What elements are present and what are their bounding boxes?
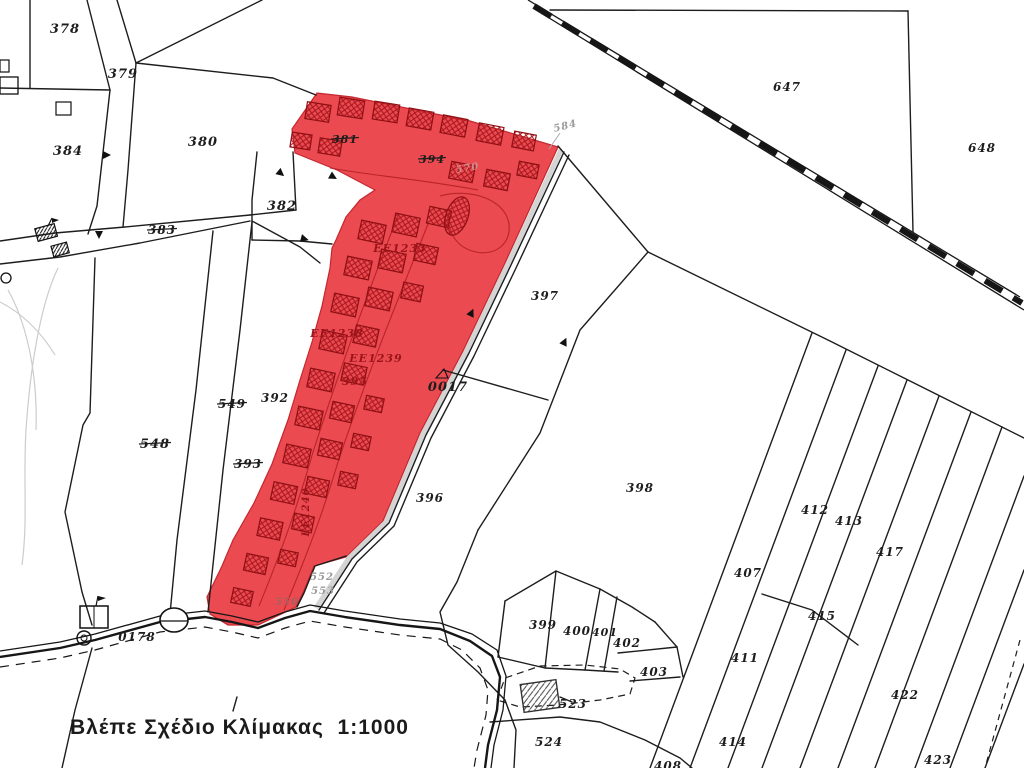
parcel-label-379: 379 xyxy=(108,67,138,82)
boundary-line xyxy=(690,350,846,768)
parcel-label-417: 417 xyxy=(876,545,904,559)
field-path xyxy=(0,302,55,355)
parcel-label-398: 398 xyxy=(626,481,654,495)
parcel-label-0017: 0017 xyxy=(428,380,468,395)
survey-mark-icon xyxy=(275,168,286,179)
parcel-label-408: 408 xyxy=(654,759,682,768)
plot-hatch xyxy=(257,518,283,540)
boundary-line xyxy=(136,63,316,95)
survey-mark-icon xyxy=(559,336,570,347)
parcel-label-402: 402 xyxy=(613,636,641,650)
parcel-label-414: 414 xyxy=(719,735,747,749)
parcel-label-647: 647 xyxy=(773,80,801,94)
parcel-label-523: 523 xyxy=(559,697,587,711)
map-caption: Βλέπε Σχέδιο Κλίμακας 1:1000 xyxy=(70,716,409,740)
road-line xyxy=(0,611,500,768)
boundary-line xyxy=(838,412,971,768)
parcel-label-380: 380 xyxy=(188,135,218,150)
parcel-label-395: 395 xyxy=(342,375,368,388)
boundary-line xyxy=(87,0,110,90)
parcel-label-0178: 0178 xyxy=(118,630,155,644)
parcel-label-584: 584 xyxy=(552,118,578,134)
plot-hatch xyxy=(512,131,537,151)
parcel-label-422: 422 xyxy=(891,688,919,702)
building-icon xyxy=(0,60,9,72)
boundary-line xyxy=(65,258,95,625)
boundary-line xyxy=(117,0,136,63)
boundary-line xyxy=(233,697,237,711)
plot-hatch xyxy=(476,123,504,145)
parcel-label-396: 396 xyxy=(416,491,444,505)
building-icon xyxy=(0,77,18,94)
plot-hatch xyxy=(290,132,312,150)
parcel-label-412: 412 xyxy=(801,503,829,517)
boundary-line xyxy=(655,622,677,647)
cadastral-map: 3783793843803833823813946476483973983925… xyxy=(0,0,1024,768)
parcel-label-411: 411 xyxy=(731,651,759,665)
map-canvas: 3783793843803833823813946476483973983925… xyxy=(0,0,1024,768)
boundary-line xyxy=(252,152,257,240)
parcel-label-403: 403 xyxy=(640,665,668,679)
plot-hatch xyxy=(337,97,365,119)
boundary-line xyxy=(498,601,505,657)
parcel-label-EE1233: EE1233 xyxy=(372,242,426,255)
boundary-line xyxy=(677,647,683,677)
boundary-line xyxy=(875,427,1002,768)
parcel-label-648: 648 xyxy=(968,141,996,155)
parcel-label-378: 378 xyxy=(50,22,80,37)
boundary-line xyxy=(648,252,1024,438)
plot-hatch xyxy=(351,433,372,450)
parcel-label-392: 392 xyxy=(261,391,289,405)
parcel-label-548: 548 xyxy=(140,437,170,452)
road-line xyxy=(541,13,1024,310)
survey-mark-icon xyxy=(328,172,339,183)
building-icon xyxy=(56,102,71,115)
plot-hatch xyxy=(243,553,268,574)
boundary-line xyxy=(505,571,655,622)
boundary-line xyxy=(908,11,913,232)
survey-mark-icon xyxy=(95,231,103,239)
road-line xyxy=(0,605,506,768)
plot-hatch xyxy=(440,115,468,137)
plot-hatch xyxy=(338,471,359,488)
parcel-label-413: 413 xyxy=(835,514,863,528)
parcel-label-553: 553 xyxy=(311,586,335,597)
plot-hatch xyxy=(484,169,511,190)
boundary-line xyxy=(800,396,939,768)
parcel-label-397: 397 xyxy=(531,289,559,303)
boundary-line xyxy=(62,648,92,768)
plot-hatch xyxy=(517,161,539,179)
flag-pole-icon xyxy=(96,596,98,606)
parcel-label-407: 407 xyxy=(734,566,762,580)
plot-hatch xyxy=(364,395,385,412)
road-dash-fill xyxy=(534,6,1022,303)
flag-icon xyxy=(98,596,106,601)
parcel-label-384: 384 xyxy=(53,144,83,159)
boundary-line xyxy=(136,0,262,63)
parcel-label-382: 382 xyxy=(267,199,297,214)
parcel-label-423: 423 xyxy=(924,753,952,767)
well-icon xyxy=(160,608,188,632)
plot-hatch xyxy=(329,401,354,422)
plot-hatch xyxy=(401,282,424,302)
building-icon xyxy=(35,224,58,242)
plot-hatch xyxy=(278,549,299,566)
flag-icon xyxy=(52,218,59,223)
boundary-line xyxy=(950,570,1024,768)
survey-mark-icon xyxy=(103,151,111,159)
boundary-line xyxy=(170,231,213,614)
road-dashed-line xyxy=(0,621,488,768)
boundary-line xyxy=(440,530,516,768)
parcel-label-381: 381 xyxy=(332,133,358,146)
boundary-line xyxy=(558,146,648,252)
well-icon xyxy=(1,273,11,283)
parcel-label-400: 400 xyxy=(563,624,591,638)
parcel-label-EE1239: EE1239 xyxy=(348,352,402,365)
parcel-label-550: 550 xyxy=(275,597,299,608)
boundary-line xyxy=(985,664,1024,768)
boundary-line xyxy=(650,333,812,768)
plot-hatch xyxy=(372,101,400,123)
plot-hatch xyxy=(305,102,331,123)
parcel-label-394: 394 xyxy=(419,153,445,166)
boundary-line xyxy=(123,63,136,227)
plot-hatch xyxy=(406,108,434,130)
plot-hatch xyxy=(231,588,254,607)
field-path xyxy=(22,268,58,565)
parcel-label-415: 415 xyxy=(808,609,836,623)
boundary-line xyxy=(88,90,110,234)
building-icon xyxy=(51,242,69,257)
parcel-label-EE1238: EE1238 xyxy=(309,327,363,340)
plot-hatch xyxy=(317,438,342,459)
boundary-line xyxy=(762,380,907,768)
field-path xyxy=(8,290,36,430)
building-icon xyxy=(520,680,560,713)
parcel-label-EE1240: EE1240 xyxy=(301,487,312,537)
parcel-label-399: 399 xyxy=(529,618,557,632)
boundary-line xyxy=(0,88,110,90)
parcel-label-552: 552 xyxy=(310,572,334,583)
boundary-line xyxy=(498,657,618,672)
boundary-line xyxy=(550,10,908,11)
parcel-label-524: 524 xyxy=(535,735,563,749)
